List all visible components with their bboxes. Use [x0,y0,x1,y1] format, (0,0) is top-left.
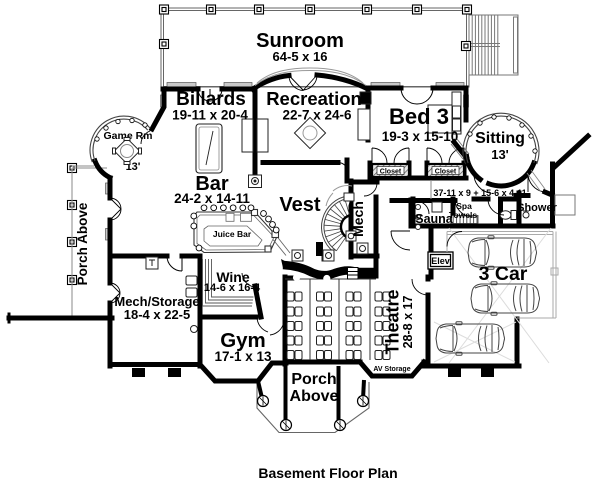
svg-text:Above: Above [290,388,339,405]
svg-text:Theatre: Theatre [383,289,403,354]
svg-text:22-7 x 24-6: 22-7 x 24-6 [282,108,352,123]
svg-text:Shower: Shower [517,202,557,214]
svg-text:13': 13' [491,147,509,162]
svg-text:Mech: Mech [350,201,366,237]
svg-text:Bed 3: Bed 3 [389,104,449,129]
svg-text:28-8 x 17: 28-8 x 17 [401,296,415,349]
svg-text:Closet: Closet [435,169,457,176]
svg-text:3 Car: 3 Car [479,263,528,285]
svg-text:Vest: Vest [279,194,320,216]
svg-text:19-11 x 20-4: 19-11 x 20-4 [172,108,248,123]
svg-text:Elev: Elev [431,256,450,266]
svg-text:Juice Bar: Juice Bar [213,229,252,239]
svg-text:37-11 x 9 + 15-6 x 4-11: 37-11 x 9 + 15-6 x 4-11 [433,188,526,198]
svg-text:14-6 x 16-4: 14-6 x 16-4 [204,282,261,294]
svg-text:18-4 x 22-5: 18-4 x 22-5 [124,307,191,322]
svg-text:Closet: Closet [380,169,402,176]
svg-text:Recreation: Recreation [266,88,362,109]
svg-text:64-5 x 16: 64-5 x 16 [273,49,328,64]
svg-text:Basement Floor Plan: Basement Floor Plan [258,465,397,481]
svg-text:24-2 x 14-11: 24-2 x 14-11 [174,191,250,206]
svg-text:AV Storage: AV Storage [373,366,410,373]
svg-text:19-3 x 15-10: 19-3 x 15-10 [382,129,459,144]
svg-text:Porch: Porch [291,371,336,388]
svg-text:17-1 x 13: 17-1 x 13 [214,349,272,364]
svg-text:Towels: Towels [449,210,477,220]
svg-text:Porch Above: Porch Above [75,202,90,285]
svg-text:Sitting: Sitting [475,130,525,147]
